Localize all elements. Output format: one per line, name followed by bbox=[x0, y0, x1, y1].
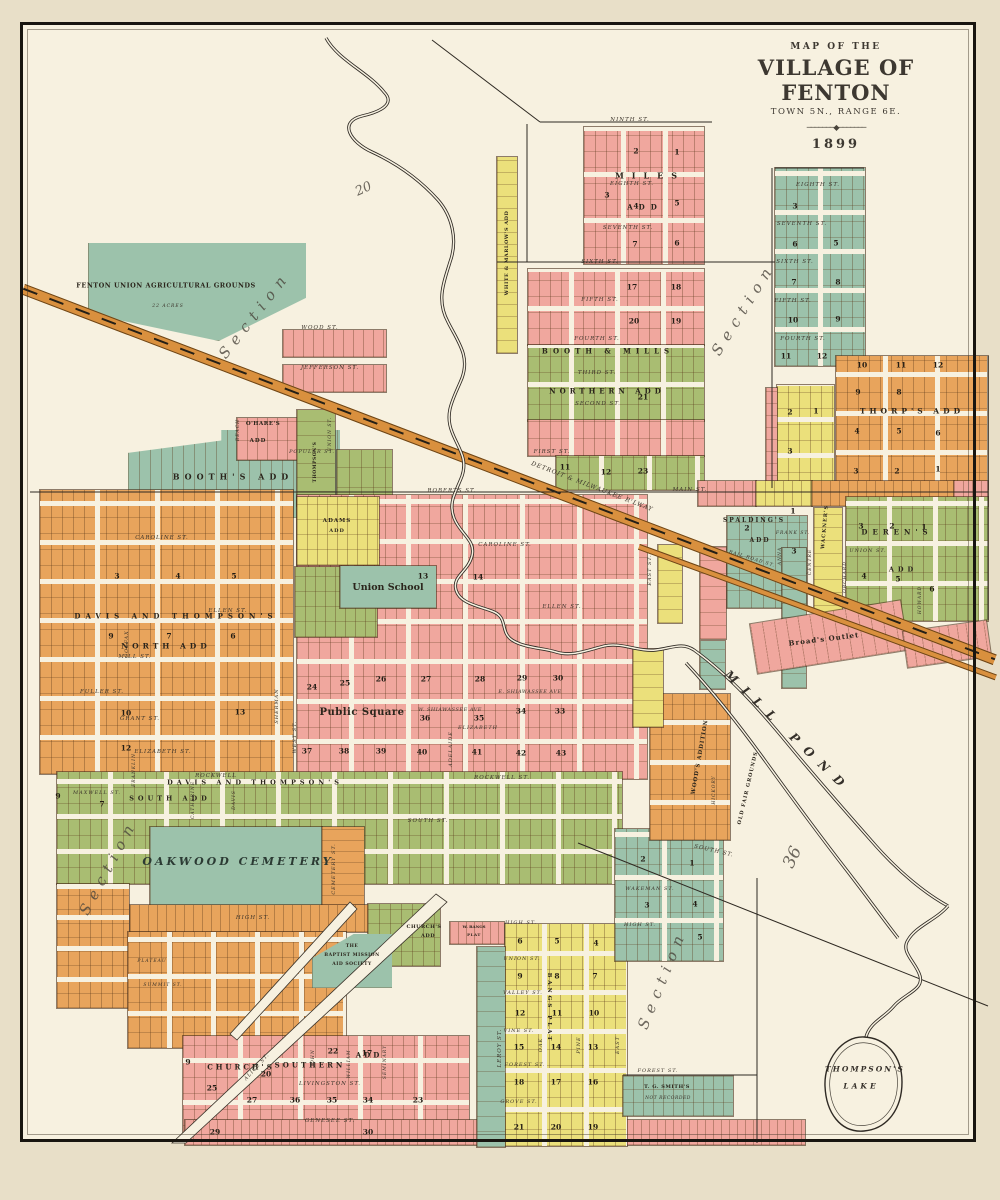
map-border-inner-line bbox=[27, 29, 969, 1135]
